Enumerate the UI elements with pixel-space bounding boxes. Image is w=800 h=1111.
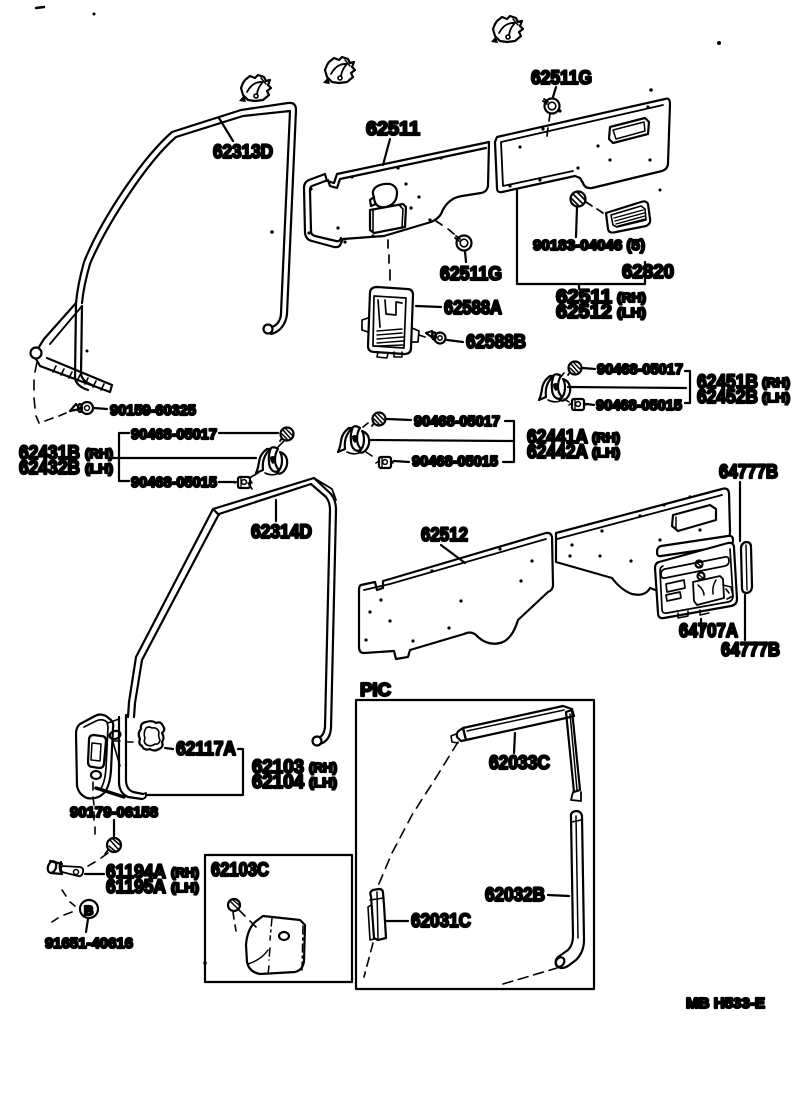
svg-text:90179-06158: 90179-06158 bbox=[70, 804, 158, 821]
svg-text:62104: 62104 bbox=[252, 771, 304, 793]
svg-text:62432B: 62432B bbox=[19, 457, 80, 479]
svg-text:(LH): (LH) bbox=[617, 305, 646, 320]
svg-text:62588B: 62588B bbox=[466, 331, 526, 353]
svg-text:90468-05017: 90468-05017 bbox=[597, 361, 683, 378]
svg-text:62031C: 62031C bbox=[411, 910, 471, 932]
svg-text:62103C: 62103C bbox=[211, 859, 269, 881]
svg-text:(RH): (RH) bbox=[85, 446, 113, 461]
svg-text:62511G: 62511G bbox=[440, 263, 502, 285]
svg-text:(RH): (RH) bbox=[762, 375, 790, 390]
svg-text:62511: 62511 bbox=[366, 118, 420, 140]
svg-text:(LH): (LH) bbox=[309, 775, 337, 790]
svg-text:62117A: 62117A bbox=[176, 738, 236, 760]
svg-text:62820: 62820 bbox=[622, 261, 674, 283]
svg-text:(RH): (RH) bbox=[592, 430, 620, 445]
svg-text:62314D: 62314D bbox=[251, 521, 312, 543]
svg-text:62588A: 62588A bbox=[444, 297, 502, 319]
svg-text:(RH): (RH) bbox=[171, 865, 199, 880]
svg-text:(LH): (LH) bbox=[171, 880, 199, 895]
svg-text:90159-60325: 90159-60325 bbox=[110, 402, 196, 419]
svg-text:MB H533-E: MB H533-E bbox=[686, 995, 765, 1012]
svg-text:90468-05017: 90468-05017 bbox=[131, 426, 217, 443]
svg-text:B: B bbox=[84, 903, 93, 918]
svg-text:(RH): (RH) bbox=[309, 760, 337, 775]
svg-text:62032B: 62032B bbox=[485, 884, 545, 906]
svg-text:62452B: 62452B bbox=[697, 386, 758, 408]
svg-text:62313D: 62313D bbox=[213, 141, 273, 163]
svg-text:90468-05017: 90468-05017 bbox=[414, 413, 500, 430]
svg-text:62512: 62512 bbox=[421, 524, 468, 546]
svg-text:(LH): (LH) bbox=[762, 390, 790, 405]
svg-text:PIC: PIC bbox=[360, 680, 391, 700]
svg-text:61195A: 61195A bbox=[106, 876, 166, 898]
svg-text:90183-04046 (5): 90183-04046 (5) bbox=[533, 237, 645, 254]
svg-text:90468-05015: 90468-05015 bbox=[596, 397, 682, 414]
svg-text:(RH): (RH) bbox=[617, 290, 646, 305]
svg-text:(LH): (LH) bbox=[85, 461, 113, 476]
svg-text:62512: 62512 bbox=[556, 301, 612, 323]
svg-text:62511G: 62511G bbox=[531, 67, 592, 89]
svg-text:90468-05015: 90468-05015 bbox=[412, 453, 498, 470]
svg-text:90468-05015: 90468-05015 bbox=[131, 474, 217, 491]
svg-text:91651-40616: 91651-40616 bbox=[45, 935, 133, 952]
svg-text:64777B: 64777B bbox=[721, 639, 780, 661]
svg-text:62033C: 62033C bbox=[489, 752, 550, 774]
svg-text:(LH): (LH) bbox=[592, 445, 620, 460]
svg-text:62442A: 62442A bbox=[527, 441, 588, 463]
svg-text:64777B: 64777B bbox=[719, 461, 778, 483]
